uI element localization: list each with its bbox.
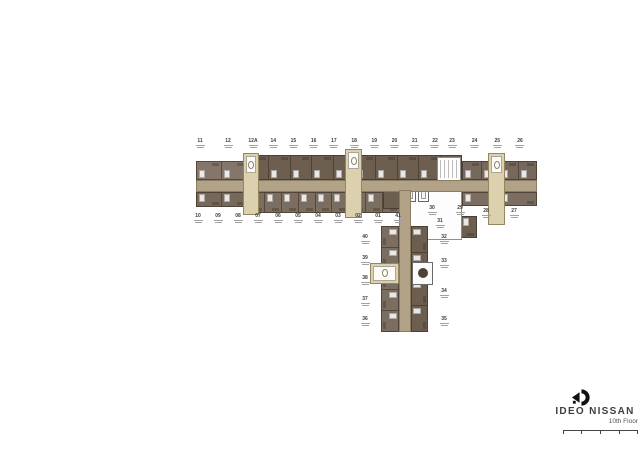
wing-service-block: [370, 263, 399, 284]
unit-cell: [463, 162, 482, 179]
unit-label-37: 37: [357, 296, 373, 306]
unit-label-35: 35: [436, 316, 452, 326]
unit-label-12: 12: [220, 138, 236, 148]
unit-label-07: 07: [250, 213, 266, 223]
scale-bar: [563, 430, 638, 434]
unit-cell: [197, 193, 222, 206]
unit-label-11: 11: [192, 138, 208, 148]
corridor-vertical: [399, 190, 411, 332]
unit-cell: [398, 156, 419, 179]
unit-label-22: 22: [427, 138, 443, 148]
labels-top-mid: 12A141516171819202122: [245, 138, 443, 148]
unit-label-02: 02: [350, 213, 366, 223]
labels-wing-left: 4039383736: [357, 234, 373, 326]
unit-cell: [366, 193, 383, 212]
wing-lift-lobby: [412, 262, 433, 285]
unit-label-26: 26: [512, 138, 528, 148]
unit-label-17: 17: [326, 138, 342, 148]
unit-label-39: 39: [357, 255, 373, 265]
units-mid-bottom: [247, 192, 400, 213]
ideo-logo-icon: [571, 388, 590, 407]
unit-cell: [265, 193, 282, 212]
service-tower-a: [243, 153, 259, 215]
unit-label-40: 40: [357, 234, 373, 244]
unit-cell: [299, 193, 316, 212]
labels-wing-right-upper: 3233: [436, 234, 452, 268]
lift-circle-icon: [418, 268, 428, 278]
unit-cell: [291, 156, 312, 179]
unit-cell: [376, 156, 397, 179]
unit-cell: [412, 306, 427, 331]
labels-wing-right-lower: 3435: [436, 288, 452, 326]
labels-core-31: 31: [432, 218, 448, 228]
unit-cell: [269, 156, 290, 179]
unit-cell: [461, 217, 477, 237]
unit-label-12A: 12A: [245, 138, 261, 148]
stair-core: [437, 157, 461, 181]
service-tower-b: [345, 149, 362, 218]
labels-top-right: 23242526: [444, 138, 528, 148]
unit-label-34: 34: [436, 288, 452, 298]
unit-cell: [382, 227, 398, 248]
labels-bottom-left: 1009080706050403020141: [190, 213, 406, 223]
unit-cell: [282, 193, 299, 212]
units-left-arm-top: [196, 161, 247, 180]
project-title: IDEO NISSAN: [550, 406, 640, 417]
floor-plan-page: 1112 12A141516171819202122 23242526 1009…: [0, 0, 640, 452]
labels-top-left: 1112: [192, 138, 236, 148]
unit-label-16: 16: [306, 138, 322, 148]
unit-label-30: 30: [424, 205, 440, 215]
unit-label-18: 18: [346, 138, 362, 148]
unit-label-14: 14: [265, 138, 281, 148]
unit-cell: [197, 162, 222, 179]
unit-cell: [316, 193, 333, 212]
unit-label-06: 06: [270, 213, 286, 223]
toilet-icon: [348, 152, 359, 169]
unit-cell: [382, 311, 398, 331]
unit-label-01: 01: [370, 213, 386, 223]
unit-label-10: 10: [190, 213, 206, 223]
unit-label-41: 41: [390, 213, 406, 223]
bath-fixtures: [373, 266, 396, 281]
unit-label-36: 36: [357, 316, 373, 326]
unit-cell: [500, 193, 536, 205]
unit-label-08: 08: [230, 213, 246, 223]
unit-label-21: 21: [407, 138, 423, 148]
toilet-icon: [246, 156, 256, 173]
unit-cell: [412, 227, 427, 253]
unit-label-03: 03: [330, 213, 346, 223]
unit-label-04: 04: [310, 213, 326, 223]
unit-label-27: 27: [506, 208, 522, 218]
unit-label-38: 38: [357, 275, 373, 285]
unit-cell: [382, 290, 398, 311]
labels-core-30-29: 3029: [424, 205, 468, 215]
stair-steps: [440, 160, 458, 178]
unit-label-25: 25: [489, 138, 505, 148]
floor-label: 10th Floor: [550, 418, 638, 425]
unit-label-09: 09: [210, 213, 226, 223]
unit-label-20: 20: [387, 138, 403, 148]
units-left-arm-bottom: [196, 192, 247, 207]
unit-label-31: 31: [432, 218, 448, 228]
unit-label-33: 33: [436, 258, 452, 268]
unit-label-15: 15: [285, 138, 301, 148]
unit-label-29: 29: [452, 205, 468, 215]
unit-label-19: 19: [366, 138, 382, 148]
unit-label-05: 05: [290, 213, 306, 223]
labels-bottom-right: 2827: [478, 208, 522, 218]
unit-label-24: 24: [467, 138, 483, 148]
unit-label-23: 23: [444, 138, 460, 148]
unit-cell: [519, 162, 537, 179]
unit-label-32: 32: [436, 234, 452, 244]
unit-label-28: 28: [478, 208, 494, 218]
toilet-icon: [491, 156, 502, 173]
unit-cell: [312, 156, 333, 179]
